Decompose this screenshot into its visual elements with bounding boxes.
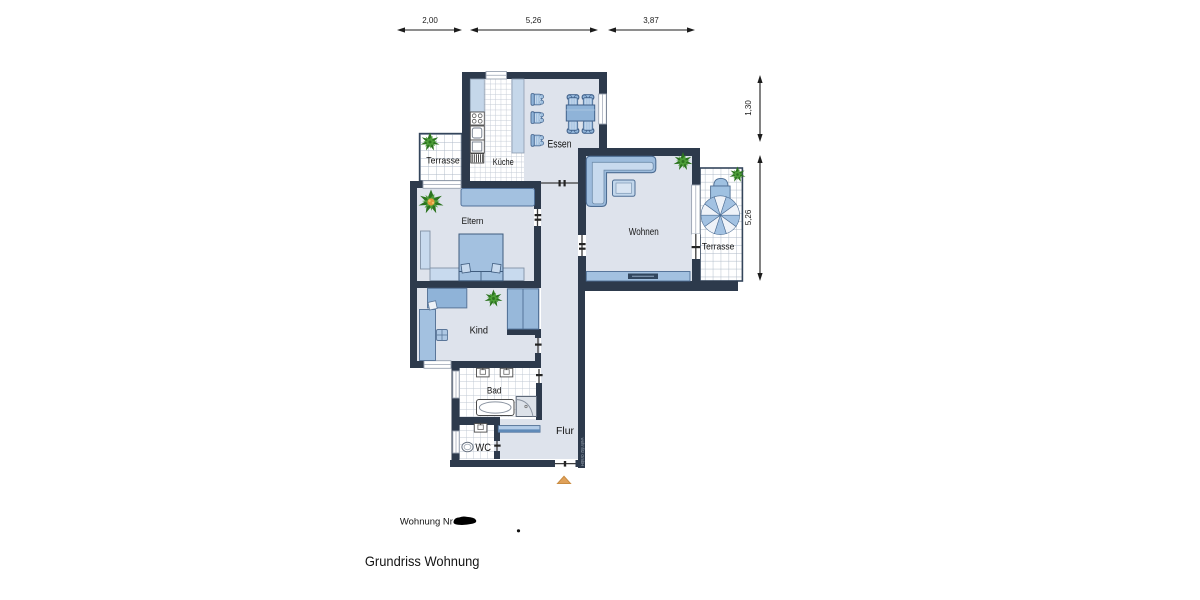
svg-text:Flur: Flur [556,426,575,437]
svg-text:Küche: Küche [493,157,514,167]
svg-text:Wohnung Nr: Wohnung Nr [400,516,453,526]
svg-text:2,00: 2,00 [422,16,438,25]
svg-text:Kind: Kind [470,325,488,336]
svg-text:1,30: 1,30 [744,100,753,116]
svg-text:Wohnen: Wohnen [629,227,659,238]
svg-text:Eltern: Eltern [462,216,484,227]
svg-text:Bad: Bad [487,386,502,396]
svg-text:5,26: 5,26 [744,209,753,225]
svg-text:WC: WC [475,442,491,454]
svg-text:3,87: 3,87 [643,16,659,25]
svg-text:Essen: Essen [548,139,572,151]
svg-text:Grundriss Wohnung: Grundriss Wohnung [365,553,480,569]
svg-text:Terrasse: Terrasse [426,156,460,166]
svg-text:wohnfitz GmbH: wohnfitz GmbH [580,438,585,467]
svg-text:5,26: 5,26 [526,16,542,25]
svg-text:Terrasse: Terrasse [702,241,735,251]
